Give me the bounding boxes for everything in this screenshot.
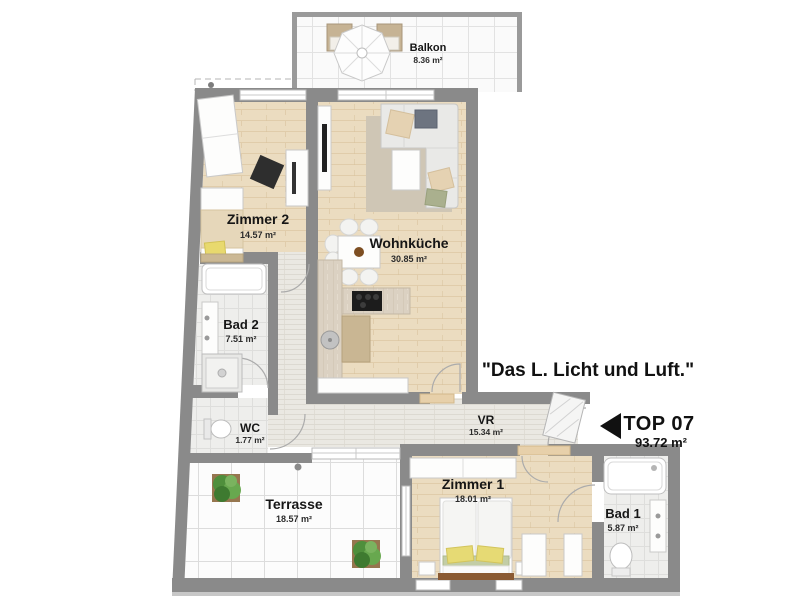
wardrobe (564, 534, 582, 576)
room-area-zimmer2: 14.57 m² (240, 230, 276, 240)
toilet (610, 543, 632, 576)
room-label-bad2: Bad 2 (223, 317, 258, 332)
room-area-bad2: 7.51 m² (225, 334, 256, 344)
room-label-wc: WC (240, 421, 260, 435)
vr-floor (268, 398, 578, 447)
terrasse-slider-window (312, 448, 400, 459)
floor-plan: Balkon 8.36 m² Zimmer 2 14.57 m² Wohnküc… (0, 0, 800, 600)
entrance-arrow-icon (600, 413, 621, 439)
wardrobe (522, 534, 546, 576)
bed-zimmer1 (438, 498, 514, 580)
sideboard (318, 378, 408, 393)
cooktop (352, 291, 382, 311)
pillow (415, 110, 437, 128)
threshold (420, 394, 454, 403)
nightstand (419, 562, 435, 575)
double-sink (202, 302, 218, 354)
wc-fixtures (204, 419, 231, 439)
unit-title: TOP 07 (623, 413, 694, 435)
room-label-bad1: Bad 1 (605, 506, 640, 521)
room-area-vr: 15.34 m² (469, 427, 503, 437)
threshold (518, 446, 570, 455)
wardrobe-top (410, 458, 516, 478)
tv-board (318, 106, 331, 190)
room-label-balkon: Balkon (410, 42, 447, 54)
zimmer1-side-window (402, 486, 410, 556)
room-area-zimmer1: 18.01 m² (455, 494, 491, 504)
desk (286, 150, 308, 206)
room-label-terrasse: Terrasse (265, 496, 323, 512)
pillow (425, 189, 447, 208)
room-area-balkon: 8.36 m² (413, 55, 442, 65)
plant (352, 540, 381, 568)
parasol (334, 25, 390, 81)
marketing-quote: "Das L. Licht und Luft." (482, 360, 694, 381)
room-area-bad1: 5.87 m² (607, 523, 638, 533)
shower (202, 354, 242, 392)
pillow (386, 110, 414, 138)
sink (650, 500, 666, 552)
pillow (446, 546, 473, 564)
room-area-terrasse: 18.57 m² (276, 514, 312, 524)
room-area-wohnkueche: 30.85 m² (391, 254, 427, 264)
room-label-wohnkueche: Wohnküche (369, 235, 448, 251)
room-label-vr: VR (478, 413, 495, 427)
room-area-wc: 1.77 m² (235, 435, 264, 445)
plant (212, 474, 241, 502)
zimmer2-window (240, 90, 306, 100)
unit-area: 93.72 m² (635, 435, 688, 450)
kitchen-island (342, 316, 370, 362)
room-label-zimmer2: Zimmer 2 (227, 211, 289, 227)
pillow (476, 546, 503, 564)
coffee-table (392, 150, 420, 190)
vr-corridor-floor (278, 252, 306, 402)
bathtub (202, 264, 266, 294)
balkon-door-window (338, 90, 434, 100)
floor-plan-page: Balkon 8.36 m² Zimmer 2 14.57 m² Wohnküc… (0, 0, 800, 600)
bathtub (604, 458, 666, 494)
toilet (204, 419, 231, 439)
room-label-zimmer1: Zimmer 1 (442, 476, 504, 492)
